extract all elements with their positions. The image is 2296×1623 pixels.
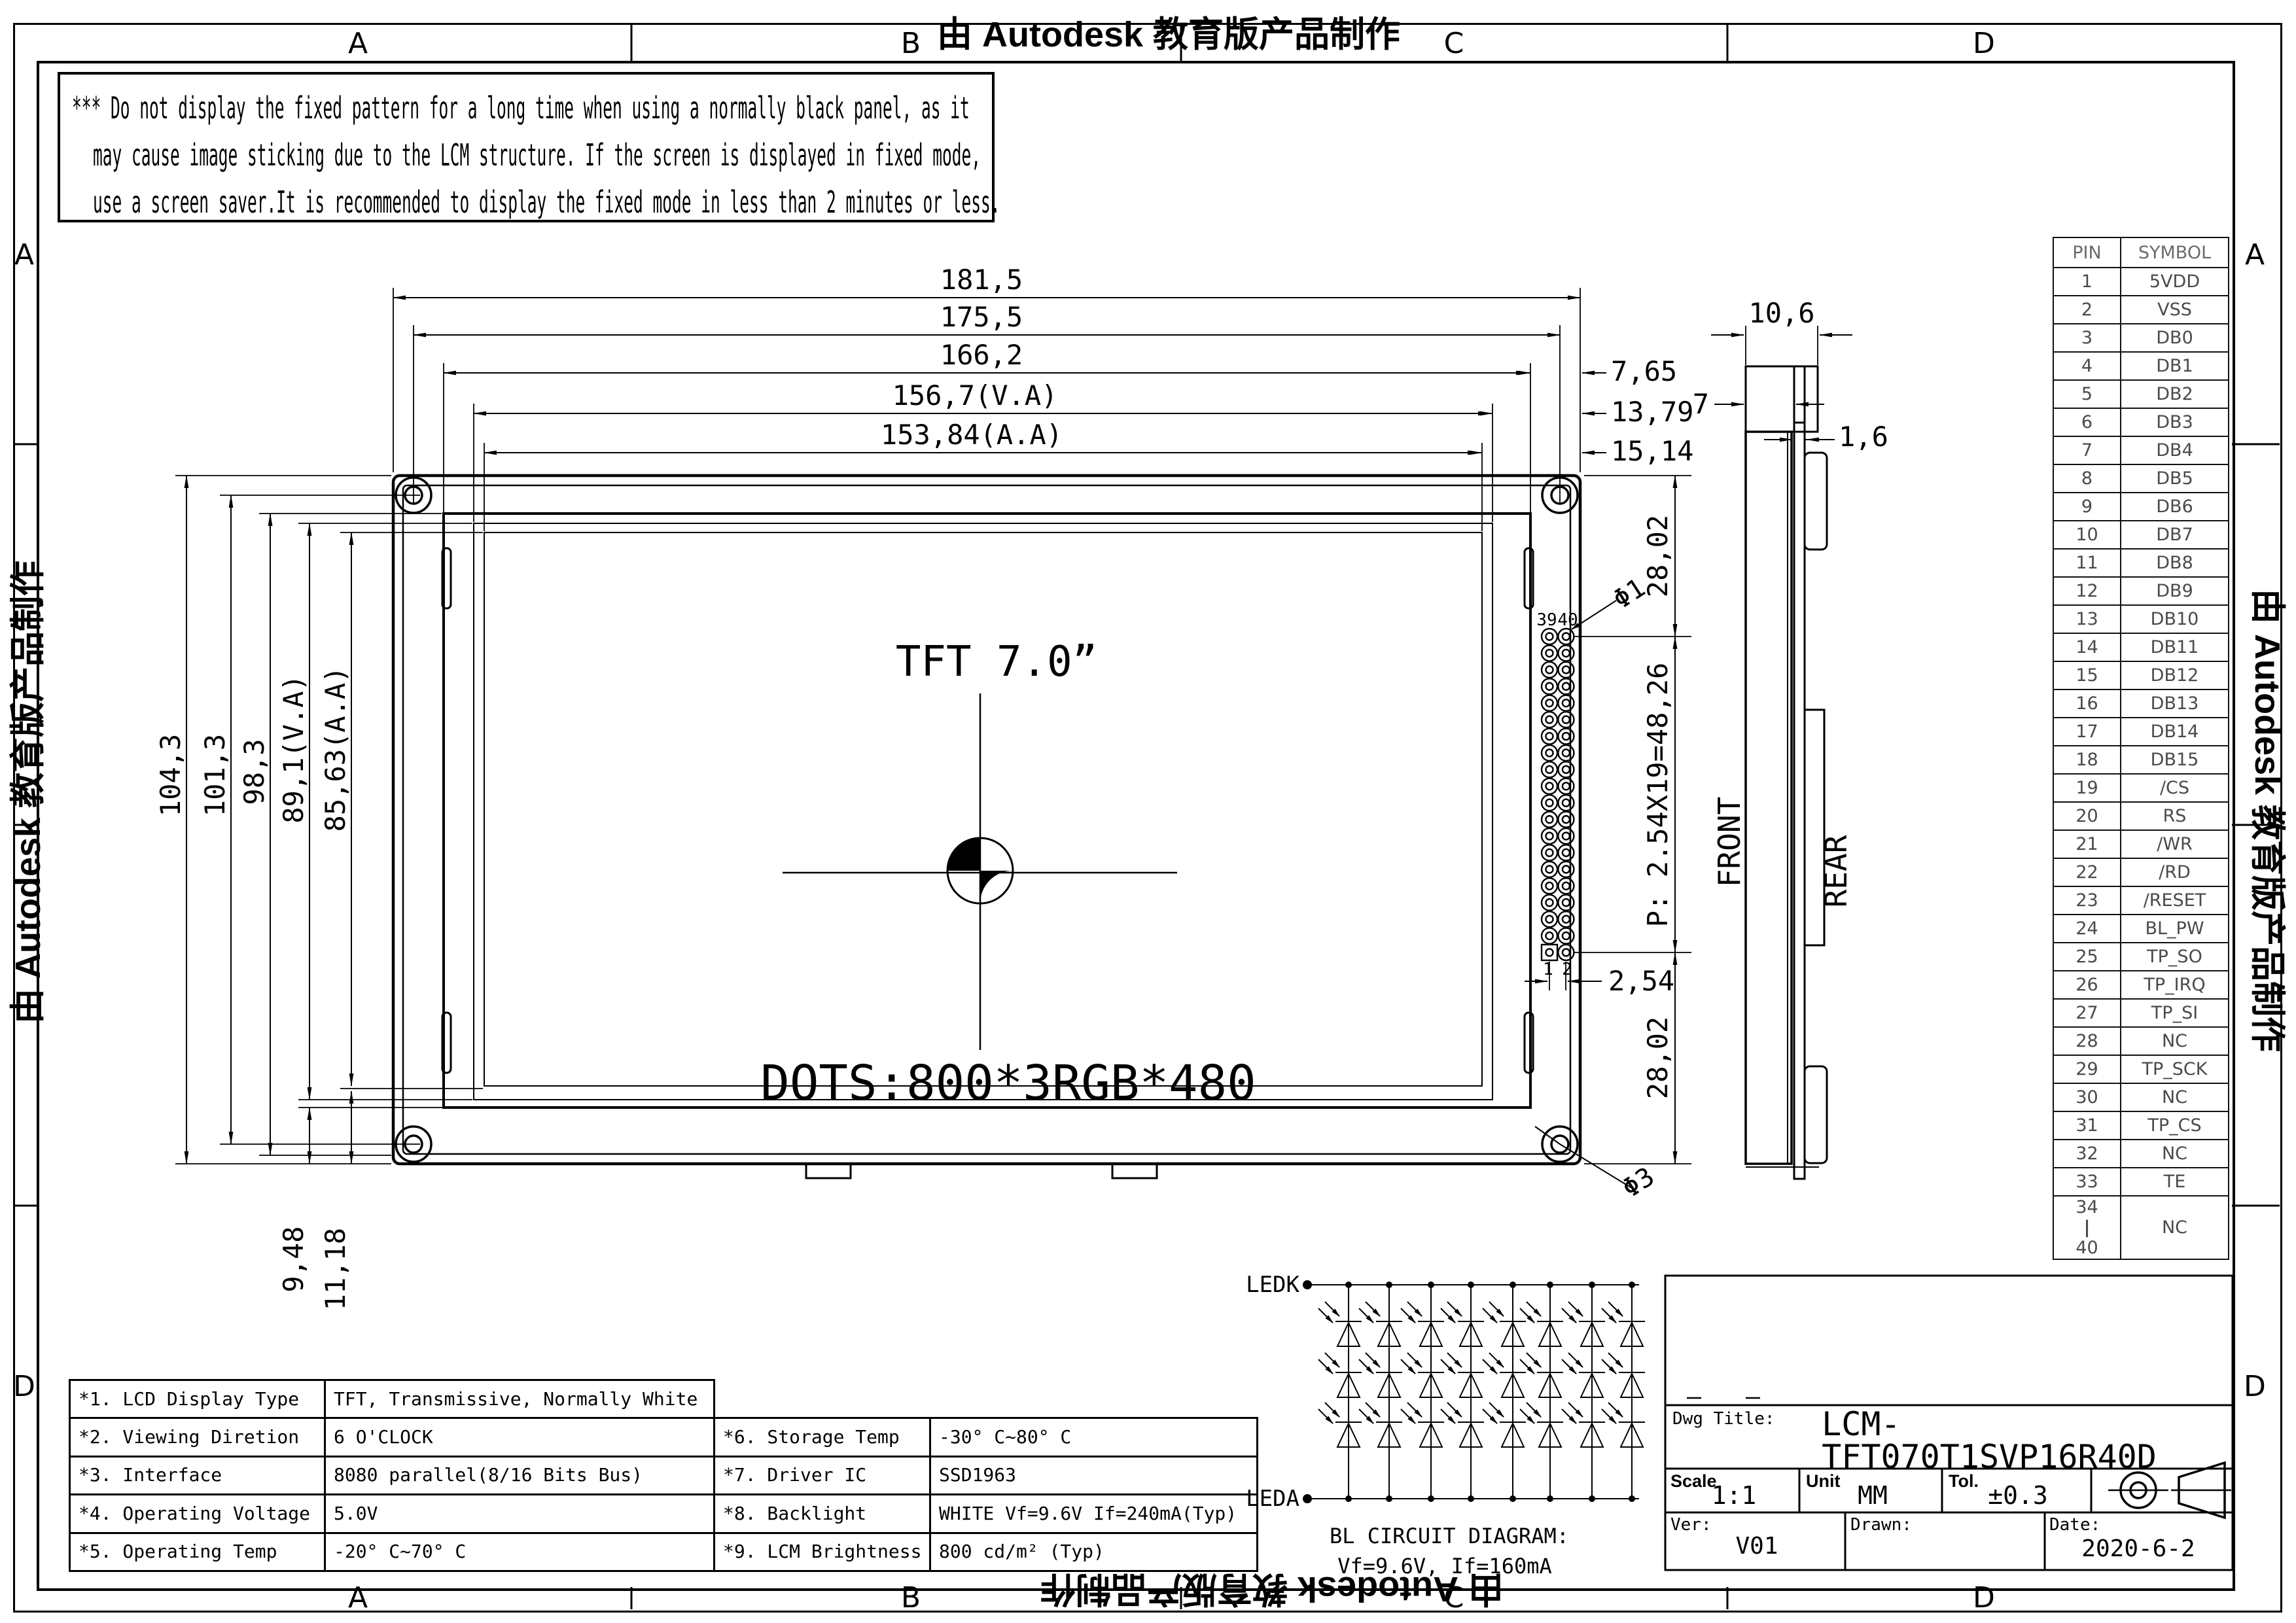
dim-height-outline: 98,3 [241,739,268,805]
symbol-cell: DB10 [2121,605,2229,633]
spec-value: 6 O'CLOCK [325,1418,715,1456]
table-row: 7DB4 [2053,436,2229,464]
pin-number-39: 39 [1536,612,1557,629]
spec-value: TFT, Transmissive, Normally White [325,1380,715,1418]
table-row: 11DB8 [2053,549,2229,577]
symbol-cell: DB4 [2121,436,2229,464]
spec-value: -30° C~80° C [930,1418,1258,1457]
spec-label: *8. Backlight [715,1495,930,1533]
symbol-cell: NC [2121,1083,2229,1111]
table-row: 27TP_SI [2053,999,2229,1027]
spec-row: *5. Operating Temp-20° C~70° C [70,1533,715,1571]
table-row: 24BL_PW [2053,915,2229,943]
pin-cell: 23 [2053,886,2121,915]
symbol-cell: NC [2121,1196,2229,1259]
tol-value: ±0.3 [1988,1483,2048,1508]
table-row: 8DB5 [2053,464,2229,493]
table-row: 30NC [2053,1083,2229,1111]
symbol-cell: /RESET [2121,886,2229,915]
dim-height-aa: 85,63(A.A) [322,667,349,832]
symbol-cell: DB5 [2121,464,2229,493]
symbol-cell: DB9 [2121,577,2229,605]
table-row: 31TP_CS [2053,1111,2229,1140]
pin-cell: 5 [2053,380,2121,408]
pin-cell: 11 [2053,549,2121,577]
symbol-cell: DB0 [2121,324,2229,352]
pin-cell: 24 [2053,915,2121,943]
pin-cell: 19 [2053,774,2121,802]
pin-cell: 29 [2053,1055,2121,1083]
pin-cell: 22 [2053,858,2121,886]
table-row-merged: 34|40NC [2053,1196,2229,1259]
pin-cell: 12 [2053,577,2121,605]
pin-cell: 10 [2053,521,2121,549]
pin-cell: 18 [2053,746,2121,774]
table-row: 13DB10 [2053,605,2229,633]
unit-label: Unit [1806,1473,1840,1490]
spec-label: *4. Operating Voltage [70,1495,325,1533]
table-row: 5DB2 [2053,380,2229,408]
drawing-sheet: A B C D A B C D A D A D 由 Autodesk 教育版产品… [0,0,2296,1623]
pin-cell: 9 [2053,493,2121,521]
panel-size-label: TFT 7.0” [896,641,1097,683]
symbol-cell: TP_SCK [2121,1055,2229,1083]
pin-cell: 3 [2053,324,2121,352]
dim-width-holes: 175,5 [940,304,1023,331]
symbol-cell: DB7 [2121,521,2229,549]
dim-conn-top: 28,02 [1644,515,1672,597]
rear-view-label: REAR [1821,835,1851,908]
dim-height-holes: 101,3 [202,734,229,816]
pin-cell: 34|40 [2053,1196,2121,1259]
symbol-cell: TE [2121,1168,2229,1196]
table-row: 19/CS [2053,774,2229,802]
spec-value: -20° C~70° C [325,1533,715,1571]
side-view [1746,366,1827,1179]
table-row: 17DB14 [2053,718,2229,746]
drawn-label: Drawn: [1850,1516,1912,1533]
dim-width-va: 156,7(V.A) [892,382,1058,410]
symbol-cell: TP_CS [2121,1111,2229,1140]
symbol-cell: TP_SO [2121,943,2229,971]
pin-cell: 7 [2053,436,2121,464]
dim-pin-pitch: 2,54 [1608,968,1674,995]
pin-cell: 28 [2053,1027,2121,1055]
bl-circuit-spec: Vf=9.6V, If=160mA [1337,1556,1552,1577]
symbol-cell: VSS [2121,296,2229,324]
symbol-cell: BL_PW [2121,915,2229,943]
table-row: 14DB11 [2053,633,2229,661]
ver-label: Ver: [1670,1516,1712,1533]
pin-table-header-row: PIN SYMBOL [2053,237,2229,268]
tol-label: Tol. [1949,1473,1979,1490]
table-row: 18DB15 [2053,746,2229,774]
dim-width-aa: 153,84(A.A) [881,421,1063,449]
spec-value: 800 cd/m² (Typ) [930,1533,1258,1571]
unit-value: MM [1858,1483,1888,1508]
connector-pin-grid [1542,629,1574,960]
table-row: 15DB12 [2053,661,2229,689]
pin-column-header: PIN [2053,237,2121,268]
table-row: 32NC [2053,1140,2229,1168]
dim-height-va: 89,1(V.A) [280,674,308,824]
spec-label: *9. LCM Brightness [715,1533,930,1571]
front-view-label: FRONT [1714,797,1744,887]
spec-label: *1. LCD Display Type [70,1380,325,1418]
symbol-cell: NC [2121,1027,2229,1055]
drawing-title: LCM-TFT070T1SVP16R40D [1822,1408,2157,1473]
dim-height-total: 104,3 [157,734,185,816]
symbol-cell: DB11 [2121,633,2229,661]
spec-row: *3. Interface8080 parallel(8/16 Bits Bus… [70,1456,715,1494]
dots-resolution-label: DOTS:800*3RGB*480 [760,1059,1256,1108]
pin-cell: 4 [2053,352,2121,380]
table-row: 12DB9 [2053,577,2229,605]
table-row: 20RS [2053,802,2229,830]
spec-row: *1. LCD Display TypeTFT, Transmissive, N… [70,1380,715,1418]
dim-side-pcb: 1,6 [1839,423,1888,451]
symbol-cell: TP_SI [2121,999,2229,1027]
pin-cell: 30 [2053,1083,2121,1111]
pin-cell: 20 [2053,802,2121,830]
dim-conn-pitch: P: 2.54X19=48,26 [1644,663,1672,928]
symbol-cell: DB15 [2121,746,2229,774]
symbol-cell: /CS [2121,774,2229,802]
pin-cell: 2 [2053,296,2121,324]
table-row: 4DB1 [2053,352,2229,380]
symbol-cell: DB1 [2121,352,2229,380]
dim-width-outline: 166,2 [940,341,1023,369]
symbol-cell: DB3 [2121,408,2229,436]
spec-label: *2. Viewing Diretion [70,1418,325,1456]
spec-row: *4. Operating Voltage5.0V [70,1495,715,1533]
table-row: 6DB3 [2053,408,2229,436]
spec-value: SSD1963 [930,1456,1258,1495]
table-row: 21/WR [2053,830,2229,858]
dim-right-1: 7,65 [1611,358,1677,385]
symbol-cell: DB12 [2121,661,2229,689]
date-label: Date: [2049,1516,2100,1533]
spec-value: WHITE Vf=9.6V If=240mA(Typ) [930,1495,1258,1533]
frame-zone-ticks [14,24,2280,1609]
ver-value: V01 [1735,1535,1778,1558]
pin-number-1: 1 [1543,961,1553,978]
symbol-cell: DB8 [2121,549,2229,577]
bl-led-array [1318,1282,1645,1502]
table-row: 16DB13 [2053,689,2229,718]
spec-value: 8080 parallel(8/16 Bits Bus) [325,1456,715,1494]
spec-label: *5. Operating Temp [70,1533,325,1571]
symbol-cell: DB6 [2121,493,2229,521]
pin-cell: 13 [2053,605,2121,633]
dwg-title-label: Dwg Title: [1672,1410,1775,1427]
spec-label: *6. Storage Temp [715,1418,930,1457]
pin-cell: 6 [2053,408,2121,436]
spec-table-right: *6. Storage Temp-30° C~80° C*7. Driver I… [713,1417,1258,1572]
pin-cell: 16 [2053,689,2121,718]
spec-value: 5.0V [325,1495,715,1533]
symbol-cell: DB13 [2121,689,2229,718]
date-value: 2020-6-2 [2081,1537,2195,1561]
symbol-cell: DB14 [2121,718,2229,746]
dim-conn-bottom: 28,02 [1644,1017,1672,1099]
pin-symbol-table: PIN SYMBOL 15VDD2VSS3DB04DB15DB26DB37DB4… [2053,237,2229,1260]
pin-cell: 1 [2053,268,2121,296]
table-row: 10DB7 [2053,521,2229,549]
table-row: 26TP_IRQ [2053,971,2229,999]
pin-cell: 33 [2053,1168,2121,1196]
table-row: 33TE [2053,1168,2229,1196]
symbol-cell: /WR [2121,830,2229,858]
pin-cell: 21 [2053,830,2121,858]
pin-cell: 31 [2053,1111,2121,1140]
pin-cell: 14 [2053,633,2121,661]
spec-table-left: *1. LCD Display TypeTFT, Transmissive, N… [69,1379,715,1572]
table-row: 15VDD [2053,268,2229,296]
table-row: 22/RD [2053,858,2229,886]
table-row: 29TP_SCK [2053,1055,2229,1083]
table-row: 9DB6 [2053,493,2229,521]
table-row: 25TP_SO [2053,943,2229,971]
symbol-cell: 5VDD [2121,268,2229,296]
pin-number-2: 2 [1562,961,1572,978]
pin-cell: 25 [2053,943,2121,971]
dim-side-offset: 7 [1693,391,1709,418]
pin-cell: 26 [2053,971,2121,999]
center-mark [783,693,1177,1050]
table-row: 2VSS [2053,296,2229,324]
pin-cell: 17 [2053,718,2121,746]
ledk-terminal-label: LEDK [1246,1274,1299,1296]
symbol-cell: /RD [2121,858,2229,886]
pin-number-40: 40 [1557,612,1578,629]
scale-value: 1:1 [1712,1483,1757,1508]
spec-row: *2. Viewing Diretion6 O'CLOCK [70,1418,715,1456]
symbol-cell: TP_IRQ [2121,971,2229,999]
spec-label: *3. Interface [70,1456,325,1494]
dim-bottom-1: 9,48 [280,1226,308,1292]
spec-label: *7. Driver IC [715,1456,930,1495]
pin-cell: 15 [2053,661,2121,689]
dim-side-cap: 10,6 [1748,300,1814,327]
table-row: 3DB0 [2053,324,2229,352]
symbol-cell: DB2 [2121,380,2229,408]
dim-right-3: 15,14 [1611,438,1693,465]
symbol-column-header: SYMBOL [2121,237,2229,268]
table-row: 28NC [2053,1027,2229,1055]
spec-row: *9. LCM Brightness800 cd/m² (Typ) [715,1533,1258,1571]
spec-row: *6. Storage Temp-30° C~80° C [715,1418,1258,1457]
pin-cell: 8 [2053,464,2121,493]
bl-circuit-caption: BL CIRCUIT DIAGRAM: [1330,1526,1569,1546]
symbol-cell: NC [2121,1140,2229,1168]
pin-cell: 32 [2053,1140,2121,1168]
pin-cell: 27 [2053,999,2121,1027]
dim-width-total: 181,5 [940,266,1023,294]
scale-label: Scale [1670,1473,1717,1490]
table-row: 23/RESET [2053,886,2229,915]
dim-bottom-2: 11,18 [322,1228,349,1310]
spec-row: *7. Driver ICSSD1963 [715,1456,1258,1495]
symbol-cell: RS [2121,802,2229,830]
spec-row: *8. BacklightWHITE Vf=9.6V If=240mA(Typ) [715,1495,1258,1533]
dim-right-2: 13,79 [1611,398,1693,426]
